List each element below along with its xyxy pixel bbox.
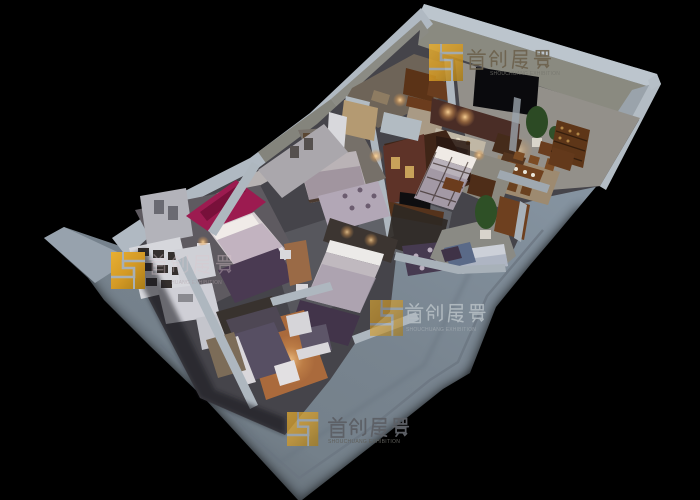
svg-text:SHOUCHUANG EXHIBITION: SHOUCHUANG EXHIBITION xyxy=(406,327,476,333)
svg-text:SHOUCHUANG EXHIBITION: SHOUCHUANG EXHIBITION xyxy=(328,439,400,445)
svg-text:HUANG EXHIBITION: HUANG EXHIBITION xyxy=(171,280,222,286)
svg-text:SHOUCHUANG EXHIBITION: SHOUCHUANG EXHIBITION xyxy=(490,71,560,77)
